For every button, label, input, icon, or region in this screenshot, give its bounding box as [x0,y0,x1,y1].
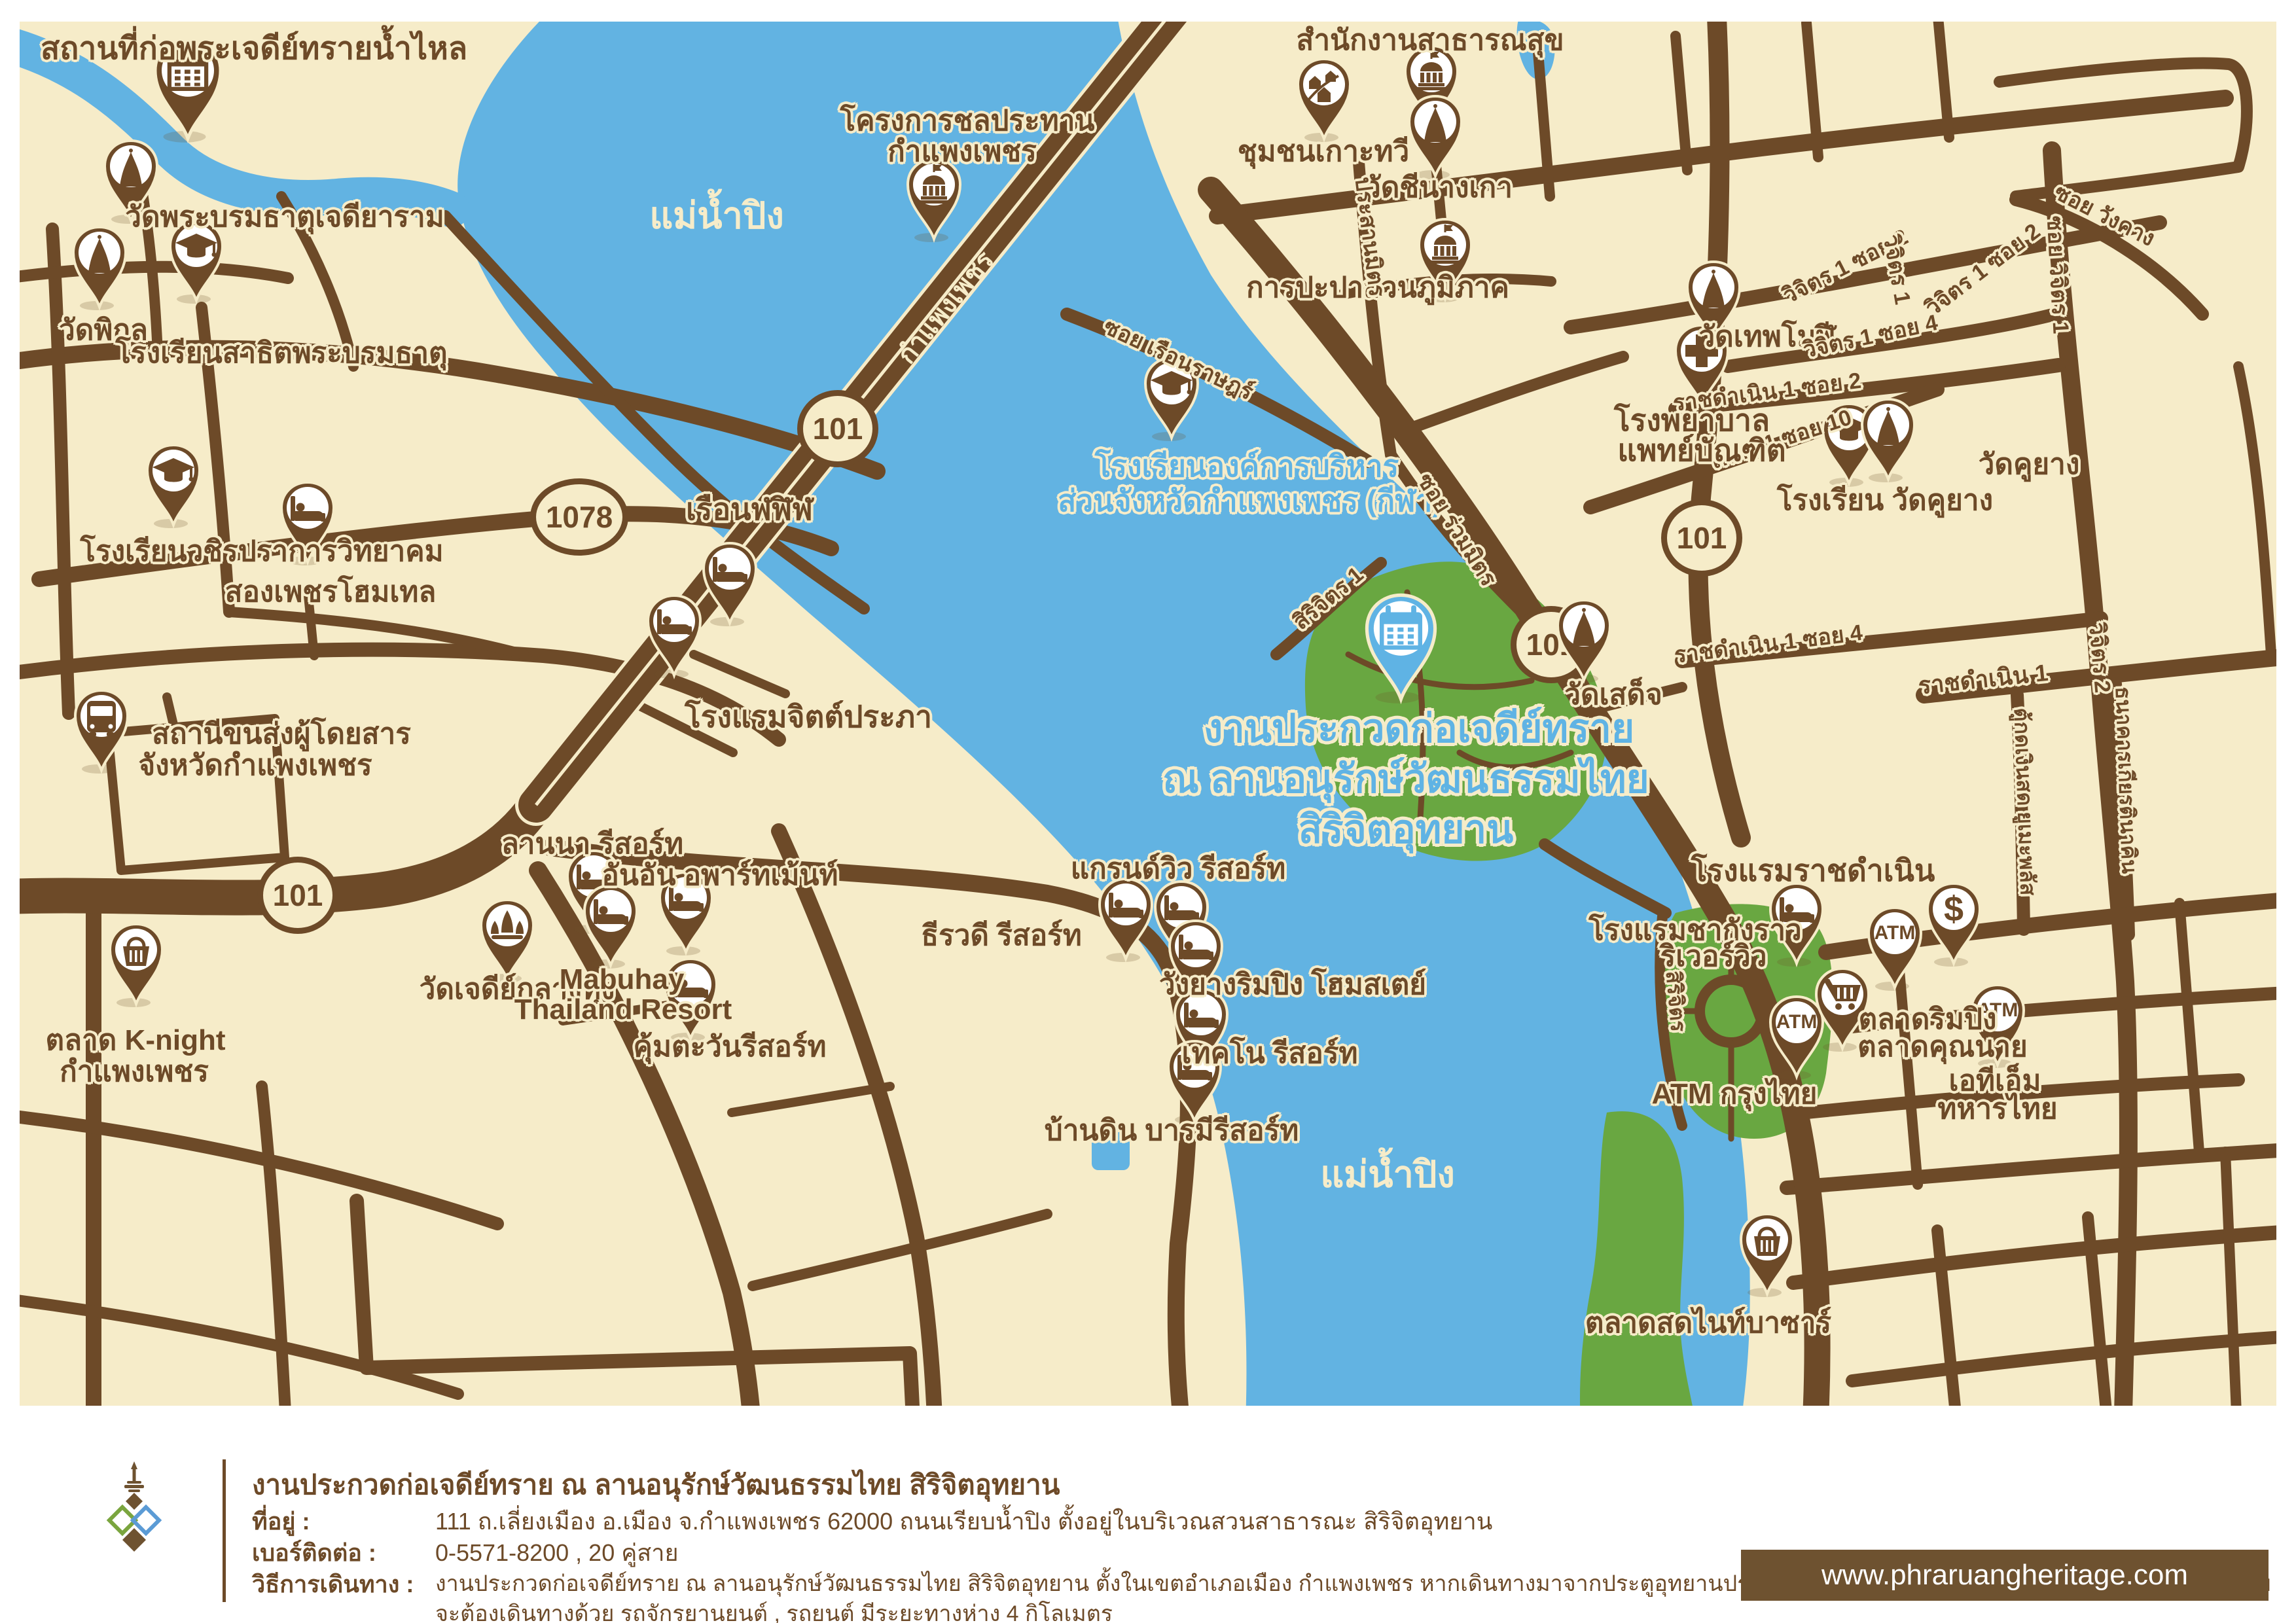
label-bus-station-2: จังหวัดกำแพงเพชร [138,751,372,781]
label-ruean-guesthouse: เรือนฬฬิฬ [686,493,813,525]
label-sand-pagoda-site: สถานที่ก่อพระเจดีย์ทรายน้ำไหล [41,33,467,65]
label-ping-river-top: แม่น้ำปิง [649,197,784,236]
route-badge-101-west: 101 [257,857,338,934]
label-baandin-resort: บ้านดิน บารมีรีสอร์ท [1045,1116,1299,1146]
label-khum-tawan-resort: คุ้มตะวันรีสอร์ท [634,1032,827,1062]
label-ping-river-bottom: แม่น้ำปิง [1320,1156,1455,1194]
pin-wat-chee-nang-kao [1401,91,1469,180]
label-soi-wijit1: ซอย วิจิตร 1 [2042,215,2072,334]
website-url: www.phraruangheritage.com [1821,1559,2188,1592]
pin-wachiraprakan-school [139,440,207,529]
label-wat-khuyang-school: โรงเรียน วัดคูยาง [1777,486,1993,516]
label-bus-station-1: สถานีขนส่งผู้โดยสาร [152,719,411,749]
label-grandview-resort: แกรนด์วิว รีสอร์ท [1071,854,1285,884]
label-satit-school: โรงเรียนสาธิตพระบรมธาตุ [115,338,447,368]
route-badge-1078: 1078 [530,478,628,556]
label-wat-khuyang: วัดคูยาง [1979,450,2080,480]
route-badge-101-hospital: 101 [1661,499,1742,577]
website-box: www.phraruangheritage.com [1741,1550,2269,1601]
pin-wat-phikun [65,222,134,311]
pin-koh-thawi-community [1290,54,1358,143]
route-badge-101-bridge: 101 [797,390,878,467]
label-chitprapha-hotel: โรงแรมจิตต์ประภา [685,701,932,732]
pin-chitprapha-hotel [640,590,708,679]
label-khunnay-market: ตลาดคุณนาย [1857,1032,2028,1062]
atm-pin-text: ATM [1776,1011,1818,1033]
label-songphet-hometel: สองเพชรโฮมเทล [225,577,437,607]
pin-night-bazaar [1733,1209,1801,1298]
label-night-bazaar: ตลาดสดไนท์บาซาร์ [1585,1308,1831,1338]
directions-label: วิธีการเดินทาง : [252,1565,414,1603]
pin-wat-khuyang [1854,394,1922,483]
label-mabuhay-1: Mabuhay [560,965,685,995]
phraruang-logo [72,1461,196,1579]
pin-atm-2 [1861,902,1929,991]
atm-pin-text: ATM [1874,922,1916,944]
label-hospital-2: แพทย์บัณฑิต [1617,435,1785,466]
pin-mabuhay-resort [577,880,645,969]
label-wangyang-homestay: วังยางริมปิง โฮมสเตย์ [1159,970,1426,1000]
map-poster: 101 1078 101 101 101 ATM ATM ATM $ สถานท… [0,0,2296,1623]
label-knight-market-1: ตลาด K-night [46,1026,226,1056]
label-atm-krungthai: ATM กรุงไทย [1652,1079,1818,1109]
label-techno-resort: เทคโน รีสอร์ท [1182,1039,1358,1069]
label-knight-market-2: กำแพงเพชร [60,1057,209,1087]
label-sirijit-road: สิริจิตร [1662,970,1689,1033]
label-anan-apartment: อันอัน อพาร์ทเม้นท์ [601,861,838,891]
pin-wat-chedi-klang-thung [473,895,541,984]
label-koh-thawi: ชุมชนเกาะทวี [1238,137,1410,167]
label-wijit2: วิจิตร 2 [2085,622,2114,694]
label-obj-school-1: โรงเรียนองค์การบริหาร [1095,450,1399,482]
label-lanna-resort: ลานนา รีสอร์ท [501,829,683,859]
label-wat-phra-borommathat: วัดพระบรมธาตุเจดียาราม [125,202,444,232]
label-mabuhay-2: Thailand Resort [514,995,732,1025]
event-title-line3: สิริจิตอุทยาน [1299,798,1513,861]
pin-bus-station [67,685,135,774]
footer-divider [223,1459,226,1602]
label-public-health: สำนักงานสาธารณสุข [1296,26,1564,56]
label-chakangrao-2: ริเวอร์วิว [1660,942,1767,972]
directions-line2: จะต้องเดินทางด้วย รถจักรยานยนต์ , รถยนต์… [435,1596,1113,1623]
label-obj-school-2: ส่วนจังหวัดกำแพงเพชร (กีฬา) [1058,485,1442,516]
label-ratchadamnoen-hotel: โรงแรมราชดำเนิน [1691,855,1935,886]
label-wachiraprakan-school: โรงเรียนวชิรปราการวิทยาคม [80,537,443,567]
pin-knight-market [102,919,170,1008]
label-atm-tmb-1: เอทีเอ็ม [1949,1066,2041,1096]
label-irrigation-1: โครงการชลประทาน [840,106,1095,136]
pin-event-calendar [1357,588,1445,704]
label-theerawadee-resort: ธีรวดี รีสอร์ท [921,921,1082,951]
footer-title: งานประกวดก่อเจดีย์ทราย ณ ลานอนุรักษ์วัฒน… [252,1463,1060,1507]
dollar-pin-text: $ [1944,889,1964,929]
label-wat-chee-nang-kao: วัดชีนางเกา [1365,173,1513,203]
label-irrigation-2: กำแพงเพชร [888,137,1037,167]
pin-wat-sadet [1550,595,1618,684]
label-atm-tmb-2: ทหารไทย [1937,1094,2057,1124]
